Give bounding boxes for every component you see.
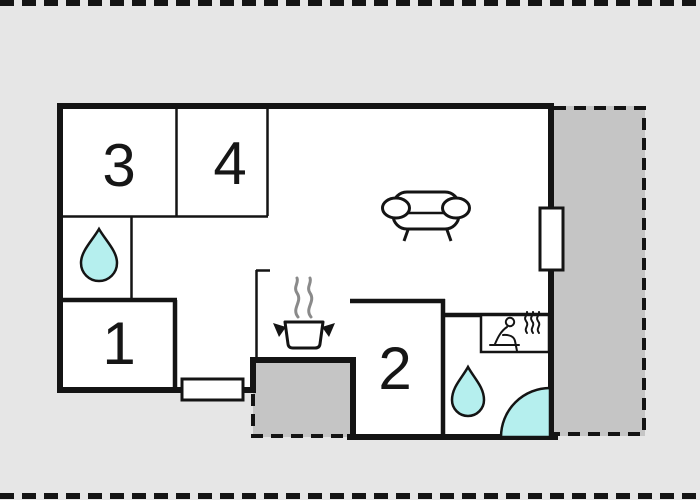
entry-door-symbol [182,379,243,400]
room-3-label: 3 [102,136,135,196]
entrance-porch-area [253,362,350,437]
floor-plan-page: 3 4 1 2 [0,0,700,500]
floor-plan-drawing [0,0,700,500]
terrace-window-symbol [540,208,563,270]
room-4-label: 4 [213,134,246,194]
terrace-area [552,106,645,436]
room-1-label: 1 [102,314,135,374]
room-2-label: 2 [378,339,411,399]
